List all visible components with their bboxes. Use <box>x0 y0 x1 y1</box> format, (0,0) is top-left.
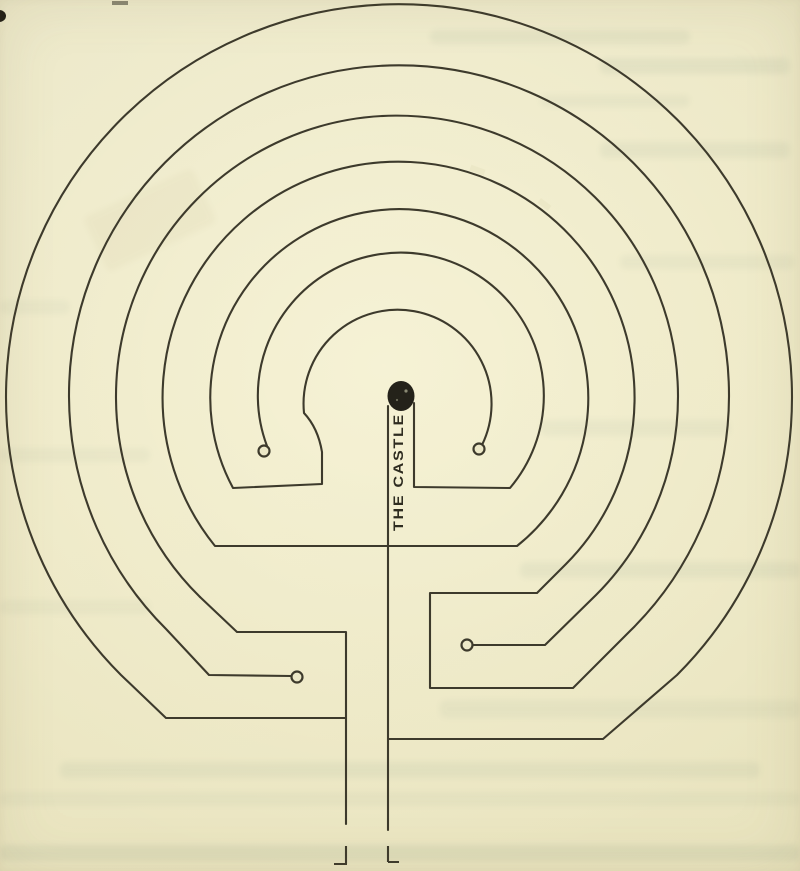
maze-wall-entrance-left-post <box>200 597 346 824</box>
edge-ink-blob <box>0 10 6 22</box>
maze-wall-entrance-left-foot <box>334 846 347 864</box>
labyrinth-figure: THE CASTLE <box>0 0 800 871</box>
wall-end-knobs <box>259 444 485 683</box>
book-page-scan: THE CASTLE <box>0 0 800 871</box>
maze-wall-outer <box>6 4 792 739</box>
castle-marker-dot <box>388 381 415 411</box>
maze-wall-entrance-left <box>116 116 678 645</box>
castle-dot-speck <box>396 399 398 401</box>
castle-marker <box>388 381 415 411</box>
wall-end-knob-inner-right <box>474 444 485 455</box>
print-gap-patches <box>469 165 551 211</box>
castle-dot-speck <box>404 389 407 392</box>
scan-edge-marks <box>0 1 128 22</box>
wall-end-knob-inner-left <box>259 446 270 457</box>
maze-wall-inner-spiral <box>69 65 729 688</box>
wall-end-knob-lower-right <box>462 640 473 651</box>
castle-label: THE CASTLE <box>391 413 406 531</box>
edge-ink-smudge <box>112 1 128 5</box>
wall-end-knob-lower-left <box>292 672 303 683</box>
maze-wall-entrance-channel-left-foot <box>388 846 399 862</box>
